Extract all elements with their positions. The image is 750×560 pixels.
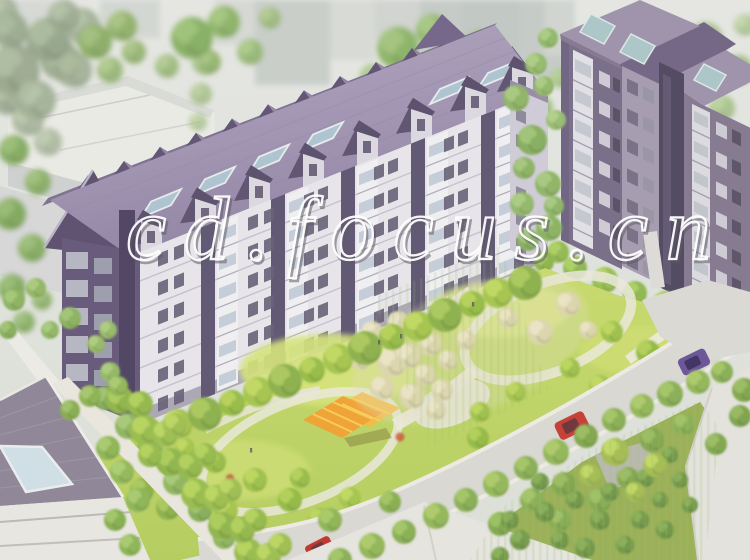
- svg-text:cd.focus.cn: cd.focus.cn: [126, 180, 729, 279]
